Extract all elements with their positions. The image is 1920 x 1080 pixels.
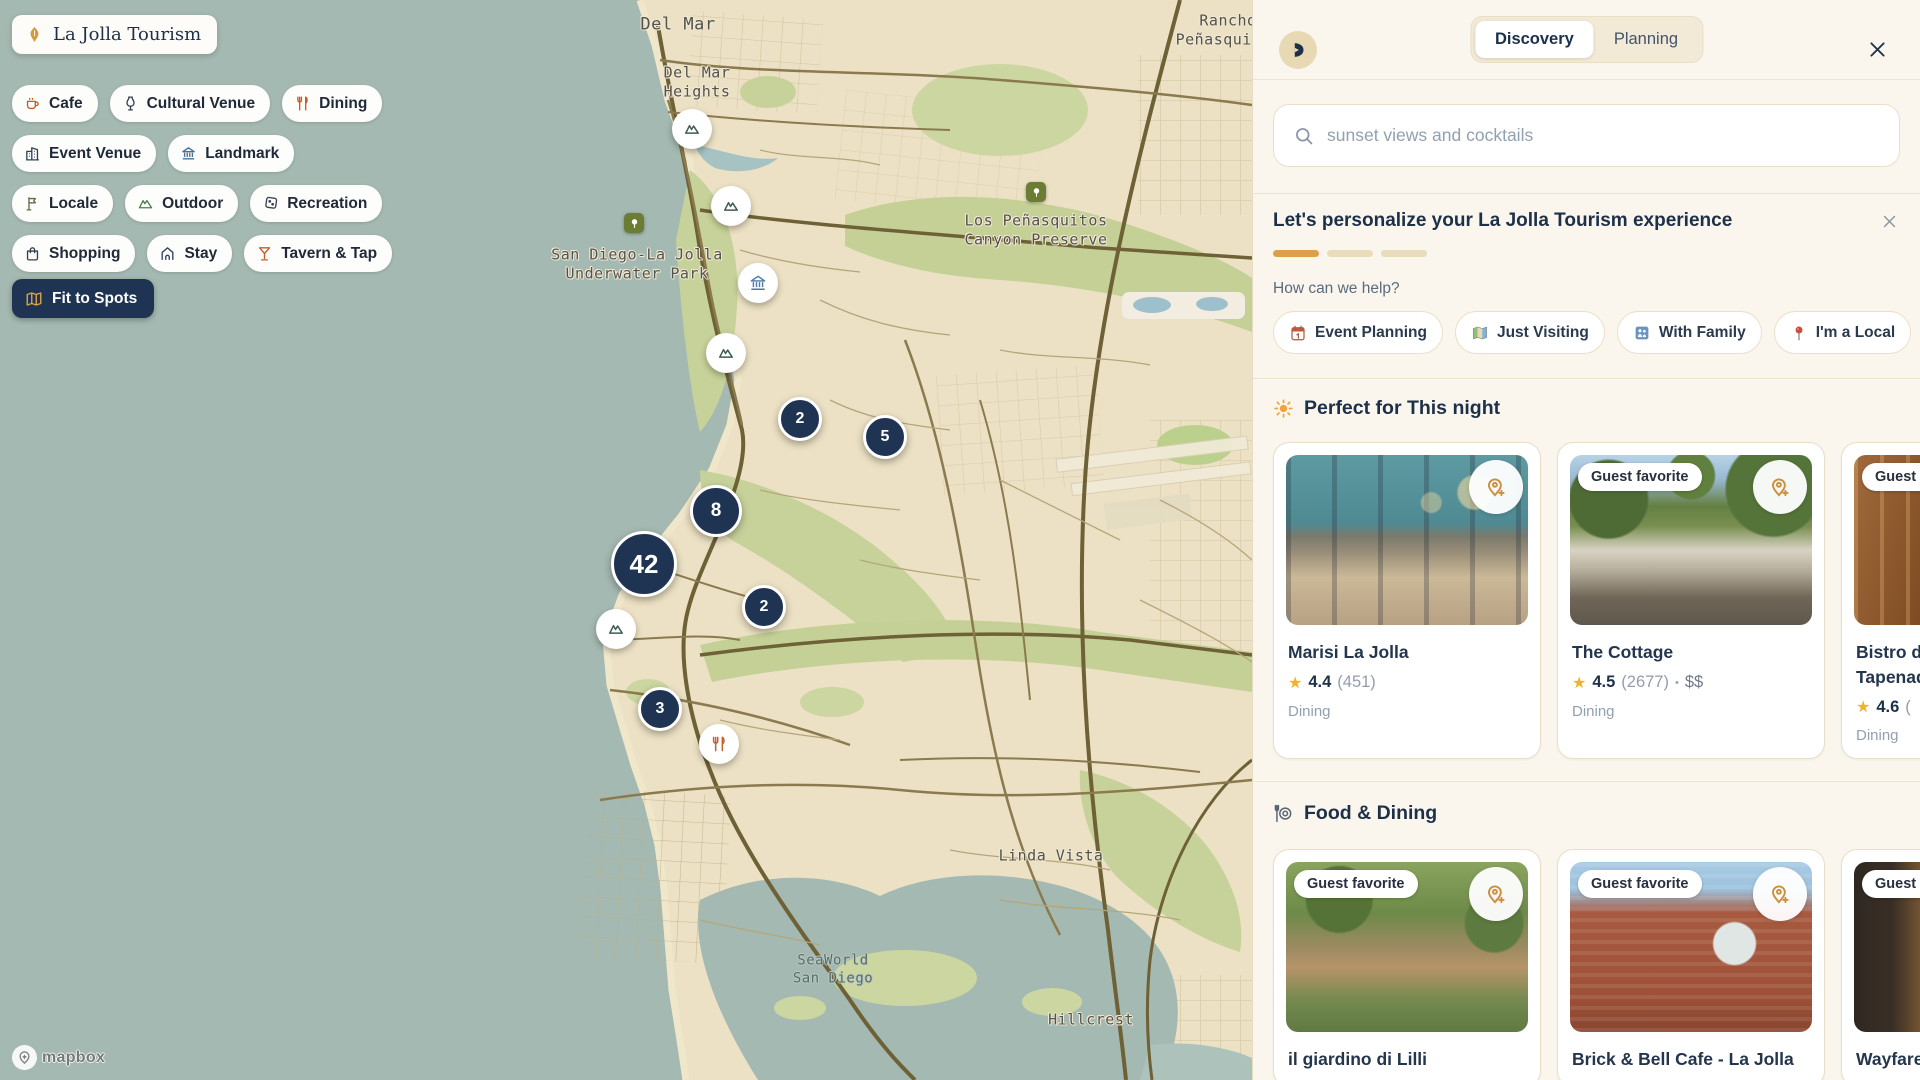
close-icon bbox=[1867, 39, 1888, 60]
outdoor-poi-marker[interactable] bbox=[596, 609, 636, 649]
pushpin-icon bbox=[1790, 324, 1808, 342]
place-photo: Guest favorite bbox=[1854, 862, 1920, 1032]
filter-chip-tavern-tap[interactable]: Tavern & Tap bbox=[244, 235, 392, 272]
card-row: Marisi La Jolla ★ 4.4 (451) Dining Guest… bbox=[1273, 442, 1900, 759]
place-name: Marisi La Jolla bbox=[1288, 640, 1526, 665]
pin-plus-icon bbox=[1767, 881, 1793, 907]
add-to-map-button[interactable] bbox=[1469, 460, 1523, 514]
place-name: il giardino di Lilli bbox=[1288, 1047, 1526, 1072]
bank-icon bbox=[748, 273, 768, 293]
place-card-il-giardino-di-lilli[interactable]: Guest favorite il giardino di Lilli bbox=[1273, 849, 1541, 1080]
filter-chip-dining[interactable]: Dining bbox=[282, 85, 382, 122]
chip-label: Event Venue bbox=[49, 145, 141, 163]
rating-value: 4.5 bbox=[1592, 673, 1615, 692]
map-cluster[interactable]: 3 bbox=[638, 687, 682, 731]
folded-map-icon bbox=[25, 290, 43, 308]
review-count: ( bbox=[1905, 698, 1911, 717]
tab-planning[interactable]: Planning bbox=[1594, 21, 1698, 58]
flag-icon bbox=[24, 195, 41, 212]
cluster-count: 2 bbox=[760, 598, 769, 616]
option-event-planning[interactable]: Event Planning bbox=[1273, 311, 1443, 354]
fit-to-spots-label: Fit to Spots bbox=[52, 290, 137, 308]
pen-nib-icon bbox=[25, 25, 44, 44]
app-logo bbox=[1279, 31, 1317, 69]
guest-favorite-badge: Guest favorite bbox=[1294, 870, 1418, 898]
cluster-count: 42 bbox=[630, 549, 659, 580]
cocktail-icon bbox=[256, 245, 273, 262]
mountain-icon bbox=[137, 195, 154, 212]
logo-glyph-icon bbox=[1287, 39, 1309, 61]
rating-value: 4.4 bbox=[1308, 673, 1331, 692]
option-label: Event Planning bbox=[1315, 324, 1427, 342]
star-icon: ★ bbox=[1572, 673, 1586, 693]
chip-label: Dining bbox=[319, 95, 367, 113]
search-section bbox=[1253, 80, 1920, 194]
map-label-penasquitos-preserve: Los PeñasquitosCanyon Preserve bbox=[965, 211, 1108, 249]
place-photo: Guest favorite bbox=[1854, 455, 1920, 625]
calendar-icon bbox=[1289, 324, 1307, 342]
map-label-del-mar: Del Mar bbox=[640, 14, 715, 35]
chip-label: Tavern & Tap bbox=[281, 245, 377, 263]
map-cluster[interactable]: 5 bbox=[863, 415, 907, 459]
chip-label: Recreation bbox=[287, 195, 367, 213]
shopping-bag-icon bbox=[24, 245, 41, 262]
option-im-a-local[interactable]: I'm a Local bbox=[1774, 311, 1912, 354]
park-tree-pin bbox=[1026, 182, 1046, 202]
cluster-count: 3 bbox=[656, 700, 665, 718]
chip-label: Cafe bbox=[49, 95, 83, 113]
outdoor-poi-marker[interactable] bbox=[706, 333, 746, 373]
progress-segment-filled bbox=[1273, 250, 1319, 257]
pin-plus-icon bbox=[1483, 474, 1509, 500]
section-perfect-for-tonight: Perfect for This night Marisi La Jolla ★… bbox=[1253, 379, 1920, 782]
cluster-count: 5 bbox=[881, 428, 890, 446]
cluster-count: 8 bbox=[711, 500, 722, 522]
panel-close-button[interactable] bbox=[1864, 36, 1890, 62]
mapbox-attribution[interactable]: mapbox bbox=[12, 1045, 105, 1070]
option-label: Just Visiting bbox=[1497, 324, 1589, 342]
filter-chip-event-venue[interactable]: Event Venue bbox=[12, 135, 156, 172]
family-icon bbox=[1633, 324, 1651, 342]
add-to-map-button[interactable] bbox=[1753, 460, 1807, 514]
filter-chip-recreation[interactable]: Recreation bbox=[250, 185, 382, 222]
map-cluster[interactable]: 2 bbox=[778, 397, 822, 441]
mountain-icon bbox=[716, 343, 736, 363]
section-title: Food & Dining bbox=[1304, 802, 1437, 825]
filter-chip-cafe[interactable]: Cafe bbox=[12, 85, 98, 122]
mountain-icon bbox=[721, 196, 741, 216]
mountain-icon bbox=[606, 619, 626, 639]
map-label-rancho-penasquitos: RanchoPeñasquitos bbox=[1176, 11, 1252, 49]
map-title-badge: La Jolla Tourism bbox=[12, 15, 217, 54]
personalize-title: Let's personalize your La Jolla Tourism … bbox=[1273, 210, 1732, 232]
place-rating: ★ 4.4 (451) bbox=[1288, 673, 1526, 693]
place-card-the-cottage[interactable]: Guest favorite The Cottage ★ 4.5 (2677) … bbox=[1557, 442, 1825, 759]
search-input[interactable] bbox=[1327, 125, 1879, 146]
progress-segment bbox=[1327, 250, 1373, 257]
place-photo bbox=[1286, 455, 1528, 625]
chip-label: Shopping bbox=[49, 245, 120, 263]
place-card-bistro-du-marche[interactable]: Guest favorite Bistro du Marché by Tapen… bbox=[1841, 442, 1920, 759]
place-category: Dining bbox=[1856, 727, 1920, 744]
place-rating: ★ 4.6 ( bbox=[1856, 697, 1920, 717]
map-title: La Jolla Tourism bbox=[53, 24, 201, 45]
option-with-family[interactable]: With Family bbox=[1617, 311, 1762, 354]
option-label: With Family bbox=[1659, 324, 1746, 342]
map-cluster[interactable]: 8 bbox=[690, 485, 742, 537]
search-box[interactable] bbox=[1273, 104, 1900, 167]
fork-knife-icon bbox=[294, 95, 311, 112]
place-category: Dining bbox=[1288, 703, 1526, 720]
vase-icon bbox=[122, 95, 139, 112]
star-icon: ★ bbox=[1288, 673, 1302, 693]
chip-label: Cultural Venue bbox=[147, 95, 256, 113]
card-row: Guest favorite il giardino di Lilli Gues… bbox=[1273, 849, 1900, 1080]
place-category: Dining bbox=[1572, 703, 1810, 720]
guest-favorite-badge: Guest favorite bbox=[1862, 870, 1920, 898]
place-rating: ★ 4.5 (2677) • $$ bbox=[1572, 673, 1810, 693]
place-photo: Guest favorite bbox=[1570, 862, 1812, 1032]
building-icon bbox=[24, 145, 41, 162]
cluster-count: 2 bbox=[796, 410, 805, 428]
price-level: $$ bbox=[1685, 673, 1703, 692]
chip-label: Stay bbox=[184, 245, 217, 263]
place-name: Wayfarer bbox=[1856, 1047, 1920, 1072]
map-cluster[interactable]: 42 bbox=[611, 531, 677, 597]
section-title: Perfect for This night bbox=[1304, 397, 1500, 420]
cafe-icon bbox=[24, 95, 41, 112]
dining-poi-marker[interactable] bbox=[699, 724, 739, 764]
tab-discovery[interactable]: Discovery bbox=[1475, 21, 1594, 58]
star-icon: ★ bbox=[1856, 697, 1870, 717]
review-count: (2677) bbox=[1621, 673, 1669, 692]
personalize-banner: Let's personalize your La Jolla Tourism … bbox=[1253, 194, 1920, 379]
map-label-underwater-park: San Diego-La JollaUnderwater Park bbox=[551, 245, 723, 283]
map-label-hillcrest: Hillcrest bbox=[1048, 1011, 1134, 1030]
filter-chip-cultural-venue[interactable]: Cultural Venue bbox=[110, 85, 271, 122]
world-map-icon bbox=[1471, 324, 1489, 342]
house-icon bbox=[159, 245, 176, 262]
rating-value: 4.6 bbox=[1876, 698, 1899, 717]
fork-knife-icon bbox=[709, 734, 729, 754]
chip-label: Outdoor bbox=[162, 195, 223, 213]
personalize-options: Event Planning Just Visiting With Family… bbox=[1273, 311, 1900, 354]
mountain-icon bbox=[682, 119, 702, 139]
option-label: I'm a Local bbox=[1816, 324, 1896, 342]
bank-icon bbox=[180, 145, 197, 162]
pin-plus-icon bbox=[1767, 474, 1793, 500]
progress-segment bbox=[1381, 250, 1427, 257]
place-card-brick-and-bell[interactable]: Guest favorite Brick & Bell Cafe - La Jo… bbox=[1557, 849, 1825, 1080]
dice-icon bbox=[262, 195, 279, 212]
place-photo: Guest favorite bbox=[1570, 455, 1812, 625]
chip-label: Landmark bbox=[205, 145, 279, 163]
guest-favorite-badge: Guest favorite bbox=[1862, 463, 1920, 491]
place-name: Bistro du Marché by Tapenade bbox=[1856, 640, 1920, 689]
filter-chip-landmark[interactable]: Landmark bbox=[168, 135, 294, 172]
sun-icon bbox=[1273, 398, 1294, 419]
pin-plus-icon bbox=[1483, 881, 1509, 907]
dot-separator: • bbox=[1675, 677, 1679, 689]
chip-label: Locale bbox=[49, 195, 98, 213]
fork-plate-icon bbox=[1273, 803, 1294, 824]
place-name: Brick & Bell Cafe - La Jolla bbox=[1572, 1047, 1810, 1072]
park-tree-pin bbox=[624, 213, 644, 233]
review-count: (451) bbox=[1337, 673, 1376, 692]
personalize-progress bbox=[1273, 250, 1900, 257]
view-tabs: Discovery Planning bbox=[1470, 16, 1703, 63]
panel-header: Discovery Planning bbox=[1253, 0, 1920, 80]
filter-chip-locale[interactable]: Locale bbox=[12, 185, 113, 222]
place-name: The Cottage bbox=[1572, 640, 1810, 665]
mapbox-logo-icon bbox=[12, 1045, 37, 1070]
close-icon bbox=[1881, 213, 1898, 230]
guest-favorite-badge: Guest favorite bbox=[1578, 463, 1702, 491]
map-label-del-mar-heights: Del MarHeights bbox=[664, 63, 731, 101]
section-food-dining: Food & Dining Guest favorite il giardino… bbox=[1253, 782, 1920, 1080]
place-photo: Guest favorite bbox=[1286, 862, 1528, 1032]
outdoor-poi-marker[interactable] bbox=[711, 186, 751, 226]
place-card-marisi-la-jolla[interactable]: Marisi La Jolla ★ 4.4 (451) Dining bbox=[1273, 442, 1541, 759]
outdoor-poi-marker[interactable] bbox=[672, 109, 712, 149]
add-to-map-button[interactable] bbox=[1469, 867, 1523, 921]
landmark-poi-marker[interactable] bbox=[738, 263, 778, 303]
filter-chip-outdoor[interactable]: Outdoor bbox=[125, 185, 238, 222]
personalize-question: How can we help? bbox=[1273, 280, 1900, 298]
search-icon bbox=[1294, 126, 1314, 146]
discovery-panel: Discovery Planning Let's personalize you… bbox=[1252, 0, 1920, 1080]
map-cluster[interactable]: 2 bbox=[742, 585, 786, 629]
map-label-linda-vista: Linda Vista bbox=[999, 847, 1104, 866]
filter-chip-shopping[interactable]: Shopping bbox=[12, 235, 135, 272]
place-card-wayfarer[interactable]: Guest favorite Wayfarer bbox=[1841, 849, 1920, 1080]
map-canvas[interactable]: Del Mar Del MarHeights RanchoPeñasquitos… bbox=[0, 0, 1252, 1080]
banner-close-button[interactable] bbox=[1879, 211, 1900, 235]
fit-to-spots-button[interactable]: Fit to Spots bbox=[12, 279, 154, 318]
add-to-map-button[interactable] bbox=[1753, 867, 1807, 921]
guest-favorite-badge: Guest favorite bbox=[1578, 870, 1702, 898]
category-filter-bar: Cafe Cultural Venue Dining Event Venue L… bbox=[12, 85, 396, 272]
filter-chip-stay[interactable]: Stay bbox=[147, 235, 232, 272]
option-just-visiting[interactable]: Just Visiting bbox=[1455, 311, 1605, 354]
map-label-seaworld: SeaWorldSan Diego bbox=[793, 953, 873, 988]
mapbox-wordmark: mapbox bbox=[42, 1049, 105, 1067]
